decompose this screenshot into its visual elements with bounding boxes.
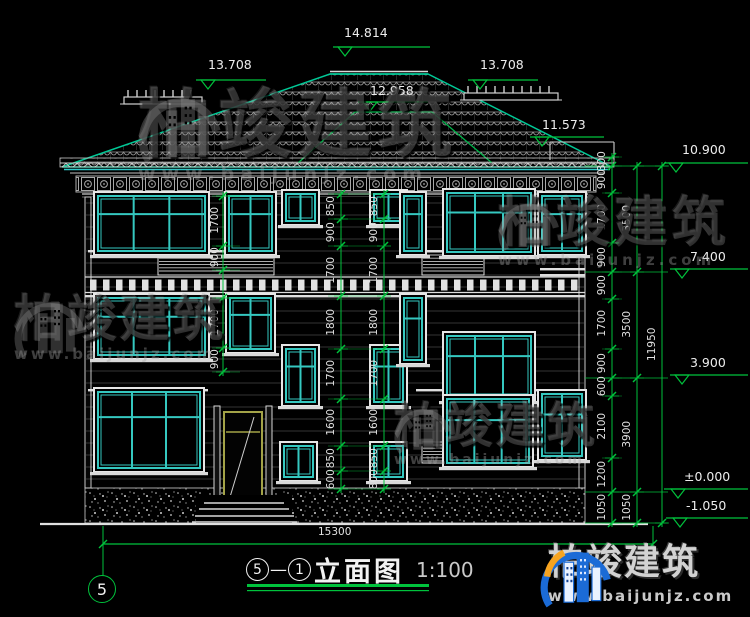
level-label: 12.958 (370, 85, 414, 98)
roof-deck-right (460, 93, 562, 100)
title-axis-from: 5 (246, 558, 269, 581)
dimension-label: 3500 (622, 301, 633, 347)
dimension-label: 600 (326, 456, 337, 502)
dimension-label: 1800 (326, 299, 337, 345)
dimension-label: 2100 (597, 403, 608, 449)
brand-logo-icon (540, 543, 612, 615)
dimension-label: 1700 (326, 247, 337, 293)
title-dash: — (270, 560, 287, 580)
title-text: 立面图 (314, 550, 404, 589)
level-label: 14.814 (344, 27, 388, 40)
dimension-label: 900 (210, 234, 221, 280)
dimension-label: 15300 (318, 527, 351, 538)
dimension-label: 3900 (622, 411, 633, 457)
level-label: 13.708 (480, 59, 524, 72)
roof-deck-left (120, 97, 206, 104)
cad-elevation-screenshot: 3009001700900900170090060021001200105035… (0, 0, 750, 617)
brand-footer: 柏竣建筑 www.baijunjz.com (540, 543, 733, 605)
axis-bubble-5: 5 (88, 575, 116, 603)
level-label: 13.708 (208, 59, 252, 72)
dimension-label: 1700 (369, 247, 380, 293)
level-label: 10.900 (682, 144, 726, 157)
level-label: ±0.000 (684, 471, 730, 484)
dimension-label: 1700 (369, 350, 380, 396)
dimension-label: 1800 (369, 299, 380, 345)
level-label: 7.400 (690, 251, 726, 264)
level-label: -1.050 (686, 500, 726, 513)
dimension-label: 11950 (647, 321, 658, 367)
title-axis-to: 1 (288, 558, 311, 581)
title-scale: 1:100 (416, 558, 474, 582)
level-label: 11.573 (542, 119, 586, 132)
dimension-label: 1050 (597, 484, 608, 530)
dimension-label: 900 (210, 336, 221, 382)
dimension-label: 800 (369, 456, 380, 502)
roof (62, 72, 614, 168)
level-label: 3.900 (690, 357, 726, 370)
dimension-label: 1700 (326, 350, 337, 396)
dimension-label: 1050 (622, 484, 633, 530)
drawing-title: 5 — 1 立面图 1:100 (246, 550, 474, 589)
dimension-label: 3500 (622, 195, 633, 241)
